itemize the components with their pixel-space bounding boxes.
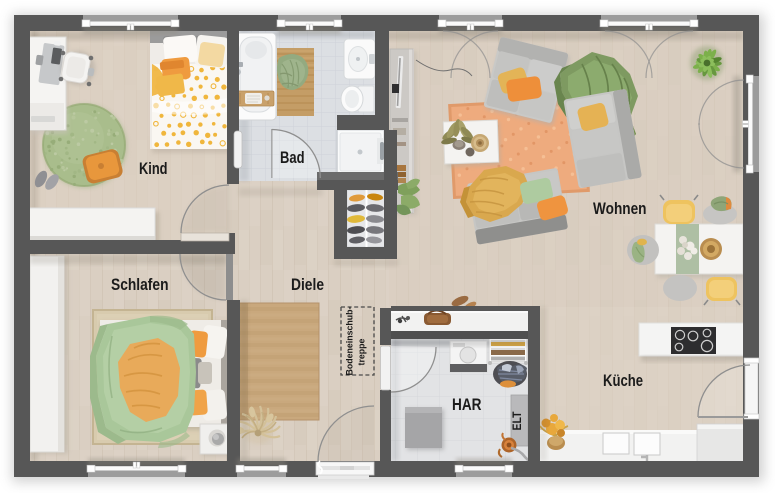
svg-text:ELT: ELT — [512, 412, 524, 431]
svg-text:Bad: Bad — [280, 149, 305, 167]
svg-text:treppe: treppe — [357, 338, 367, 365]
svg-text:Schlafen: Schlafen — [111, 276, 169, 294]
svg-text:Kind: Kind — [139, 160, 168, 178]
svg-text:Küche: Küche — [603, 372, 643, 390]
svg-text:Wohnen: Wohnen — [593, 200, 647, 218]
svg-text:HAR: HAR — [452, 396, 482, 414]
svg-text:Diele: Diele — [291, 276, 324, 294]
svg-text:Bodeneinschub-: Bodeneinschub- — [345, 306, 355, 375]
